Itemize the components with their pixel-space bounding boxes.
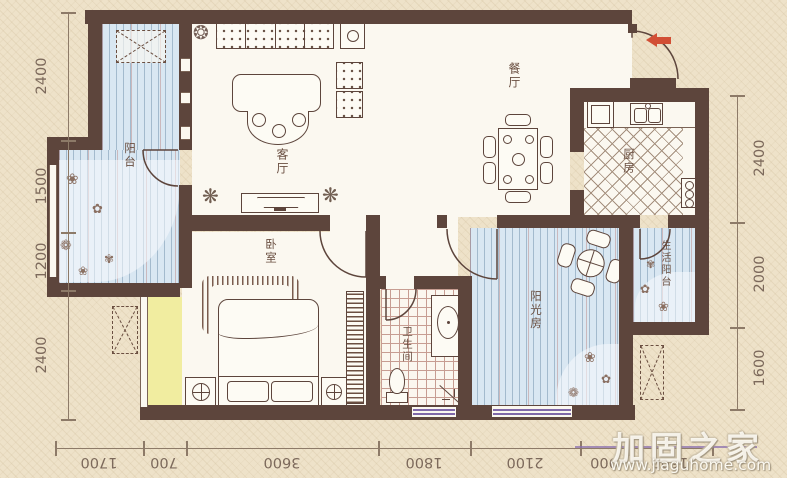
dim-tick xyxy=(61,419,76,421)
bathroom-sink xyxy=(437,306,459,339)
wall xyxy=(88,10,102,150)
coffee-table xyxy=(232,74,321,112)
floor-entry xyxy=(570,24,632,90)
wall xyxy=(668,215,709,228)
flower-icon: ✿ xyxy=(640,282,650,296)
dim-label: 2100 xyxy=(507,454,544,470)
window-line xyxy=(493,409,571,411)
wall xyxy=(180,215,330,231)
chair xyxy=(585,228,612,250)
pillow xyxy=(227,381,269,402)
dining-chair xyxy=(540,162,553,184)
room-label-living: 客厅 xyxy=(274,148,291,176)
wall xyxy=(380,276,386,289)
flower-icon: ✿ xyxy=(92,202,103,217)
room-label-kitchen: 厨房 xyxy=(621,148,637,175)
dim-tick xyxy=(378,441,380,456)
dining-chair xyxy=(483,162,496,184)
round-table xyxy=(573,246,608,281)
dim-tick xyxy=(61,140,76,142)
dim-tick xyxy=(55,441,57,456)
wall xyxy=(570,88,584,152)
dim-line-left xyxy=(68,12,69,420)
side-table xyxy=(340,22,365,49)
sofa xyxy=(216,22,334,49)
shower-corner xyxy=(440,385,460,403)
ac-unit-box xyxy=(112,306,138,354)
window xyxy=(181,92,190,104)
watermark-url: www.jiaguhome.com xyxy=(610,456,771,474)
armchair xyxy=(336,91,363,118)
dim-label: 1800 xyxy=(406,454,443,470)
flower-icon: ❀ xyxy=(78,264,88,278)
dim-line-right xyxy=(737,95,738,410)
pillow xyxy=(271,381,313,402)
entry-arrow-icon xyxy=(646,33,676,47)
window xyxy=(49,165,57,277)
bathroom-door xyxy=(386,289,416,320)
room-label-bedroom: 卧室 xyxy=(263,238,279,265)
flower-icon: ✿ xyxy=(601,372,611,386)
wall xyxy=(630,78,676,91)
room-label-service-balcony: 生活阳台 xyxy=(657,240,672,288)
wall xyxy=(437,215,447,228)
dim-label: 1600 xyxy=(752,350,768,387)
wall xyxy=(179,185,192,288)
plant-icon: ❋ xyxy=(322,183,339,207)
dim-label: 1500 xyxy=(34,168,50,205)
dining-chair xyxy=(483,136,496,158)
dim-label: 700 xyxy=(150,454,178,470)
window-line xyxy=(493,413,571,415)
floor-plan: ❀ ✿ ❁ ✾ ❀ ❀ ✿ ❁ ✿ ❀ ✾ xyxy=(0,0,787,478)
flower-icon: ✾ xyxy=(104,252,114,266)
dim-tick xyxy=(61,290,76,292)
plant-icon: ❋ xyxy=(202,184,219,208)
window xyxy=(181,58,190,72)
wall xyxy=(85,10,632,24)
dim-tick xyxy=(730,409,745,411)
window xyxy=(181,126,190,140)
dining-chair xyxy=(505,191,531,203)
window-line xyxy=(413,413,455,415)
dining-table xyxy=(498,128,538,190)
window-line xyxy=(413,409,455,411)
dim-tick xyxy=(143,441,145,456)
flower-icon: ❁ xyxy=(60,238,72,254)
wall xyxy=(497,215,640,228)
dim-label: 2400 xyxy=(752,140,768,177)
dim-tick xyxy=(730,95,745,97)
dim-label: 2000 xyxy=(752,256,768,293)
dim-label: 1700 xyxy=(81,454,118,470)
bay-window-yellow xyxy=(146,297,182,407)
flower-icon: ❀ xyxy=(584,350,596,366)
room-label-sunroom: 阳光房 xyxy=(528,290,544,331)
fridge xyxy=(587,101,614,128)
dim-tick xyxy=(580,441,582,456)
dim-tick xyxy=(186,441,188,456)
dining-chair xyxy=(540,136,553,158)
dining-chair xyxy=(505,114,531,126)
chair xyxy=(556,242,578,269)
dim-label: 3600 xyxy=(264,454,301,470)
dim-tick xyxy=(730,222,745,224)
room-label-dining: 餐厅 xyxy=(506,62,523,90)
tv-cabinet xyxy=(241,193,319,213)
room-label-balcony: 阳台 xyxy=(122,142,138,169)
dim-label: 2400 xyxy=(34,337,50,374)
window xyxy=(492,406,572,417)
ac-unit-box xyxy=(116,30,166,63)
dim-tick xyxy=(470,441,472,456)
armchair xyxy=(336,62,363,89)
kitchen-sink xyxy=(630,103,663,125)
sunroom-door xyxy=(447,229,497,279)
fan-icon: ❂ xyxy=(193,22,209,44)
dim-tick xyxy=(61,232,76,234)
dim-tick xyxy=(61,12,76,14)
flower-icon: ✾ xyxy=(646,258,655,271)
bed xyxy=(218,299,319,406)
toilet xyxy=(389,368,405,394)
bedroom-door xyxy=(320,231,366,277)
nightstand xyxy=(185,377,216,406)
room-label-bathroom: 卫生间 xyxy=(400,326,415,364)
wall xyxy=(458,276,472,407)
balcony-door xyxy=(143,150,178,186)
ac-unit-box xyxy=(640,345,664,400)
wall xyxy=(619,322,709,335)
dim-label: 2400 xyxy=(34,58,50,95)
flower-icon: ❀ xyxy=(658,300,669,315)
wardrobe xyxy=(346,291,364,404)
bay-window xyxy=(140,297,148,407)
wall xyxy=(619,215,633,420)
flower-icon: ❁ xyxy=(568,386,579,401)
nightstand xyxy=(321,377,347,406)
wall xyxy=(695,92,709,335)
dim-label: 1200 xyxy=(34,243,50,280)
dim-tick xyxy=(730,327,745,329)
wall xyxy=(366,215,380,407)
